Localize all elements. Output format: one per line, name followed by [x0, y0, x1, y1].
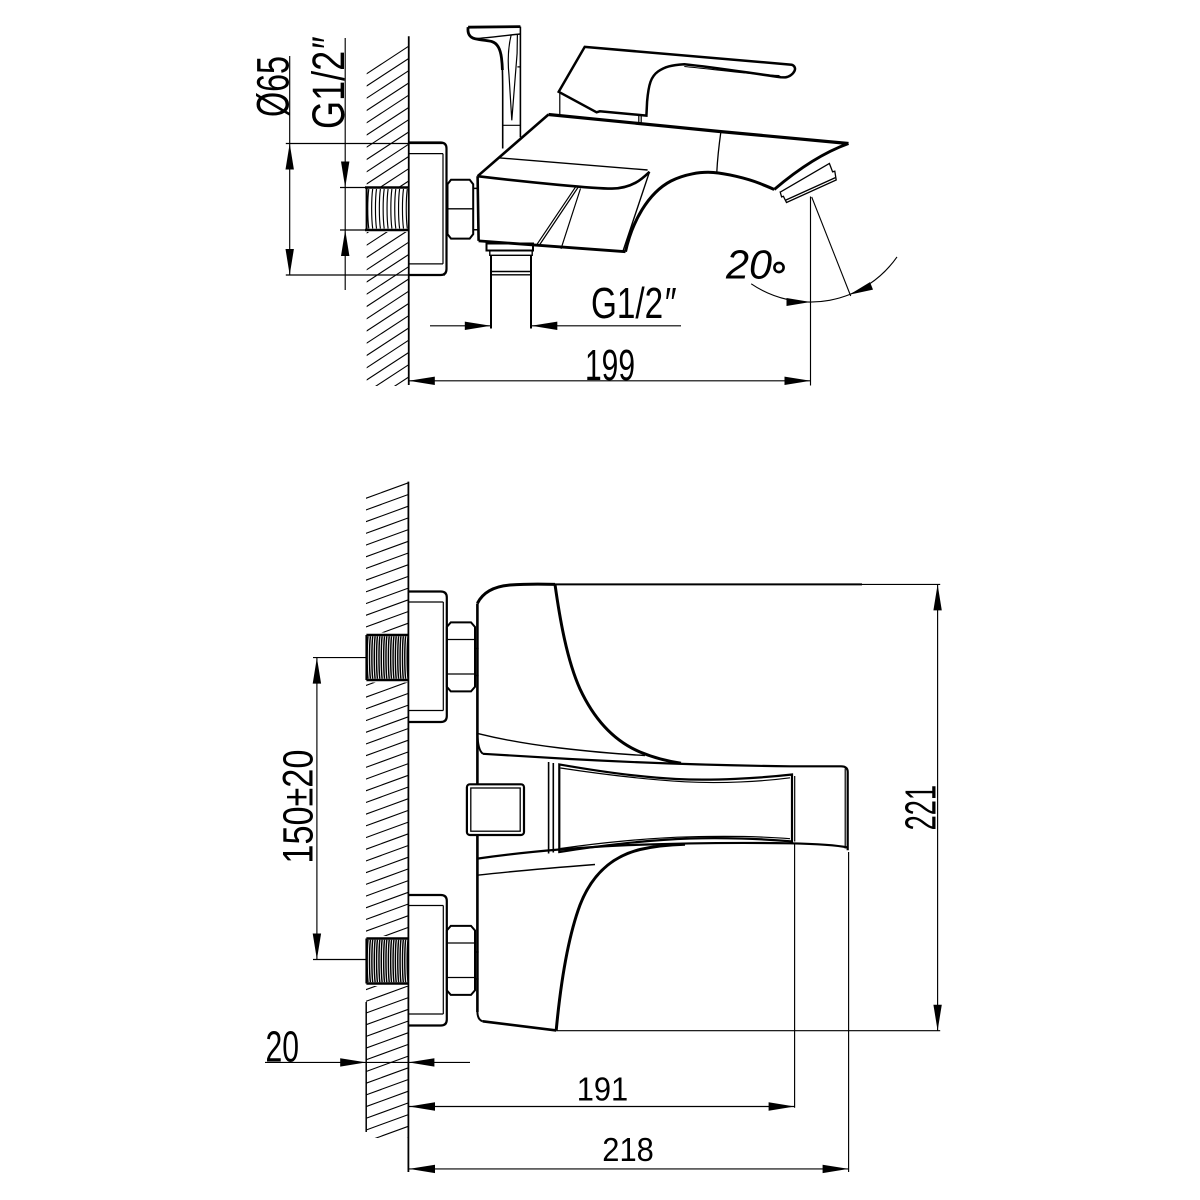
svg-text:150±20: 150±20 — [275, 750, 323, 864]
svg-text:Ø65: Ø65 — [248, 56, 299, 117]
svg-text:G1/2″: G1/2″ — [303, 36, 354, 129]
svg-text:20: 20 — [725, 242, 772, 288]
svg-text:199: 199 — [585, 341, 635, 390]
svg-text:20: 20 — [266, 1023, 300, 1072]
svg-text:191: 191 — [577, 1071, 629, 1108]
svg-text:221: 221 — [897, 785, 946, 831]
svg-text:G1/2″: G1/2″ — [591, 279, 676, 328]
svg-text:218: 218 — [602, 1132, 654, 1169]
